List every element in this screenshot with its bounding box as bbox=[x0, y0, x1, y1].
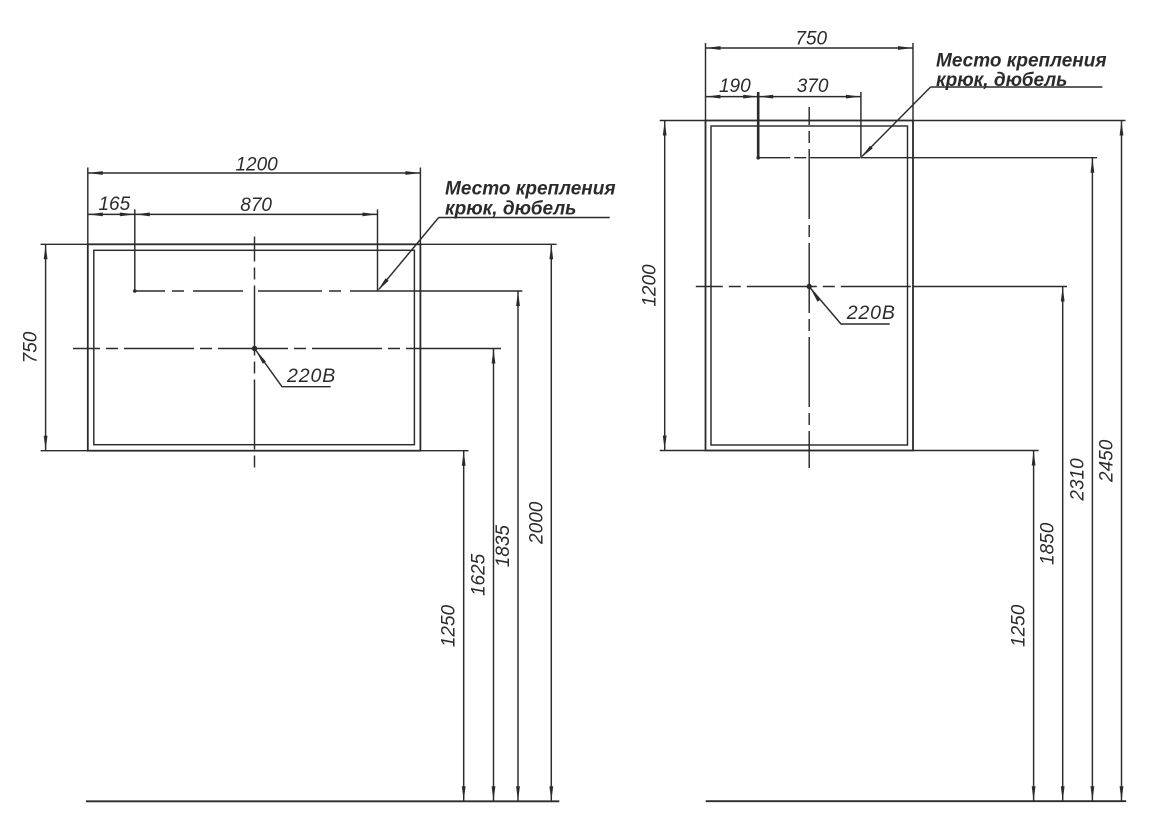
svg-text:165: 165 bbox=[98, 194, 130, 215]
svg-text:1200: 1200 bbox=[640, 264, 661, 307]
svg-text:2310: 2310 bbox=[1067, 458, 1088, 502]
svg-text:2000: 2000 bbox=[526, 501, 547, 545]
svg-text:1250: 1250 bbox=[1009, 604, 1030, 647]
svg-text:крюк, дюбель: крюк, дюбель bbox=[445, 199, 576, 220]
svg-text:750: 750 bbox=[795, 29, 827, 50]
svg-text:1200: 1200 bbox=[235, 154, 278, 175]
svg-text:1250: 1250 bbox=[439, 604, 460, 647]
svg-text:220В: 220В bbox=[286, 365, 336, 387]
svg-text:2450: 2450 bbox=[1097, 439, 1118, 483]
svg-text:220В: 220В bbox=[846, 302, 896, 324]
svg-text:Место крепления: Место крепления bbox=[936, 51, 1107, 72]
svg-text:750: 750 bbox=[21, 331, 42, 363]
svg-text:1625: 1625 bbox=[469, 553, 490, 596]
svg-text:1850: 1850 bbox=[1038, 522, 1059, 565]
svg-text:Место крепления: Место крепления bbox=[445, 179, 616, 200]
svg-text:870: 870 bbox=[240, 195, 272, 216]
svg-text:370: 370 bbox=[797, 76, 829, 97]
svg-text:1835: 1835 bbox=[493, 525, 514, 568]
svg-text:крюк, дюбель: крюк, дюбель bbox=[936, 70, 1067, 91]
svg-text:190: 190 bbox=[719, 76, 751, 97]
